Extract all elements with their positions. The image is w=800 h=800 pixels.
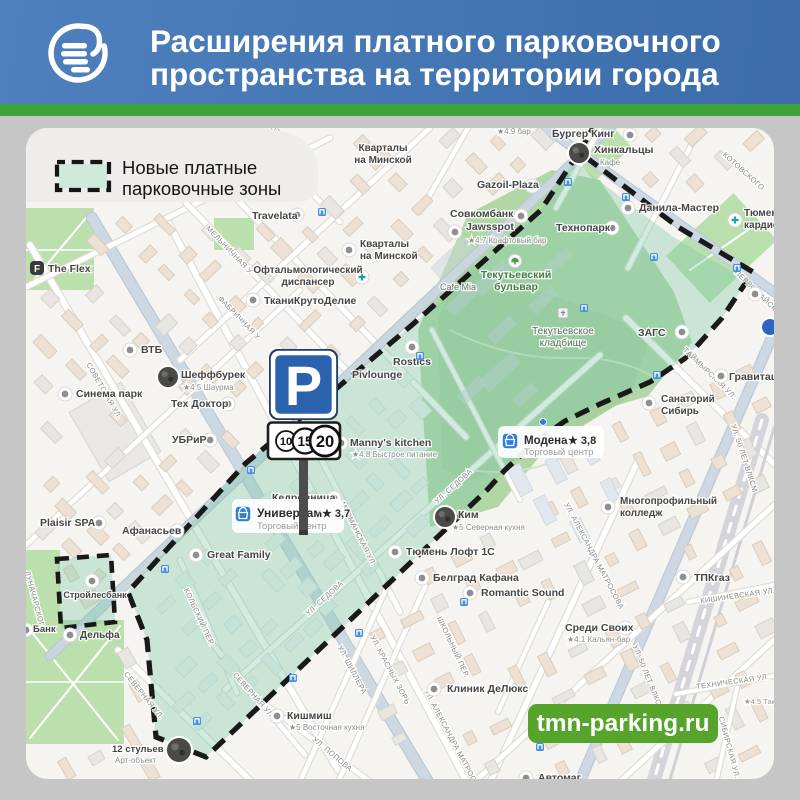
- svg-text:ВТБ: ВТБ: [141, 344, 163, 356]
- svg-text:ТПКгаз: ТПКгаз: [694, 572, 730, 584]
- svg-text:★ 3,8: ★ 3,8: [568, 435, 596, 447]
- svg-text:Travelata: Travelata: [252, 210, 298, 222]
- svg-text:10: 10: [280, 436, 292, 448]
- svg-text:кладбище: кладбище: [540, 337, 587, 349]
- svg-text:Торговый центр: Торговый центр: [524, 447, 594, 458]
- svg-text:Универсам: Универсам: [257, 506, 322, 520]
- svg-text:Тюмен: Тюмен: [744, 208, 774, 219]
- svg-text:tmn-parking.ru: tmn-parking.ru: [537, 710, 710, 737]
- svg-text:Хинкальцы: Хинкальцы: [594, 144, 653, 156]
- svg-text:Rostics: Rostics: [393, 356, 431, 368]
- svg-text:Кишмиш: Кишмиш: [287, 710, 332, 722]
- svg-text:Многопрофильный: Многопрофильный: [620, 495, 717, 507]
- svg-text:12 стульев: 12 стульев: [112, 744, 164, 755]
- svg-text:Cafe Mia: Cafe Mia: [440, 282, 476, 292]
- svg-text:P: P: [285, 354, 322, 417]
- svg-text:Кварталы: Кварталы: [358, 143, 407, 154]
- svg-text:Банк: Банк: [33, 624, 56, 635]
- svg-text:★ 3,7: ★ 3,7: [322, 508, 350, 520]
- svg-text:Plaisir SPA: Plaisir SPA: [40, 517, 96, 529]
- svg-text:Кварталы: Кварталы: [360, 239, 409, 250]
- svg-text:Manny's kitchen: Manny's kitchen: [350, 437, 431, 449]
- svg-text:Автомаг: Автомаг: [538, 772, 582, 779]
- svg-text:Тюмень Лофт 1С: Тюмень Лофт 1С: [406, 546, 495, 558]
- svg-text:Гравитация: Гравитация: [729, 371, 774, 383]
- svg-text:Текутьевский: Текутьевский: [481, 269, 552, 281]
- svg-text:Новые платные: Новые платные: [122, 157, 257, 178]
- svg-text:Great Family: Great Family: [207, 549, 271, 561]
- svg-text:Офтальмологический: Офтальмологический: [253, 264, 362, 276]
- svg-text:★4.5 Так: ★4.5 Так: [744, 697, 774, 706]
- svg-text:The Flex: The Flex: [48, 263, 91, 275]
- svg-text:Текутьевское: Текутьевское: [532, 326, 594, 337]
- svg-text:F: F: [34, 264, 40, 275]
- svg-text:колледж: колледж: [620, 508, 663, 519]
- svg-text:Ким: Ким: [458, 509, 479, 521]
- svg-text:Бургер Кинг: Бургер Кинг: [552, 128, 615, 140]
- svg-text:Торговый центр: Торговый центр: [257, 521, 327, 532]
- svg-text:ЗАГС: ЗАГС: [638, 327, 666, 339]
- svg-text:Pivlounge: Pivlounge: [352, 369, 402, 381]
- svg-text:★4.9 бар: ★4.9 бар: [497, 128, 531, 136]
- svg-text:★4.8 Быстрое питание: ★4.8 Быстрое питание: [352, 450, 437, 459]
- svg-text:Белград Кафана: Белград Кафана: [433, 572, 519, 584]
- svg-text:★4.5 Шаурма: ★4.5 Шаурма: [183, 383, 234, 392]
- svg-text:Афанасьев: Афанасьев: [122, 525, 182, 537]
- svg-text:Клиник ДеЛюкс: Клиник ДеЛюкс: [447, 683, 528, 695]
- svg-text:кардио: кардио: [744, 220, 774, 231]
- svg-text:Сибирь: Сибирь: [661, 405, 699, 417]
- svg-text:УБРиР: УБРиР: [172, 434, 207, 446]
- svg-text:на Минской: на Минской: [354, 155, 412, 166]
- svg-text:★5 Восточная кухня: ★5 Восточная кухня: [289, 723, 364, 732]
- svg-text:Тех Доктор: Тех Доктор: [171, 398, 228, 410]
- svg-text:Данила-Мастер: Данила-Мастер: [639, 202, 719, 214]
- svg-text:парковочные зоны: парковочные зоны: [122, 178, 281, 199]
- svg-text:ТканиКрутоДелие: ТканиКрутоДелие: [264, 295, 357, 307]
- svg-text:Модена: Модена: [524, 435, 568, 447]
- svg-text:Совкомбанк: Совкомбанк: [450, 208, 514, 220]
- svg-text:★5 Северная кухня: ★5 Северная кухня: [452, 523, 525, 532]
- svg-text:диспансер: диспансер: [282, 277, 335, 288]
- svg-text:Санаторий: Санаторий: [661, 394, 715, 405]
- svg-text:★4.1 Кальян-бар: ★4.1 Кальян-бар: [567, 635, 631, 644]
- svg-text:★4.7 Крафтовый бар: ★4.7 Крафтовый бар: [468, 236, 547, 245]
- svg-text:Среди Своих: Среди Своих: [565, 622, 634, 634]
- svg-text:Gazoil-Plaza: Gazoil-Plaza: [477, 179, 539, 191]
- svg-text:Jawsspot: Jawsspot: [466, 221, 514, 233]
- svg-text:Дельфа: Дельфа: [80, 629, 120, 641]
- svg-text:Технопарк: Технопарк: [556, 222, 611, 234]
- svg-text:на Минской: на Минской: [360, 251, 418, 262]
- svg-text:20: 20: [316, 433, 334, 451]
- svg-text:Синема парк: Синема парк: [76, 388, 143, 400]
- svg-text:Шеффбурек: Шеффбурек: [181, 369, 246, 381]
- svg-text:Кафе: Кафе: [600, 158, 621, 167]
- svg-text:Romantic Sound: Romantic Sound: [481, 587, 564, 599]
- svg-text:бульвар: бульвар: [494, 281, 538, 293]
- svg-text:Стройлесбанк: Стройлесбанк: [63, 590, 127, 600]
- svg-text:Арт-объект: Арт-объект: [115, 756, 157, 765]
